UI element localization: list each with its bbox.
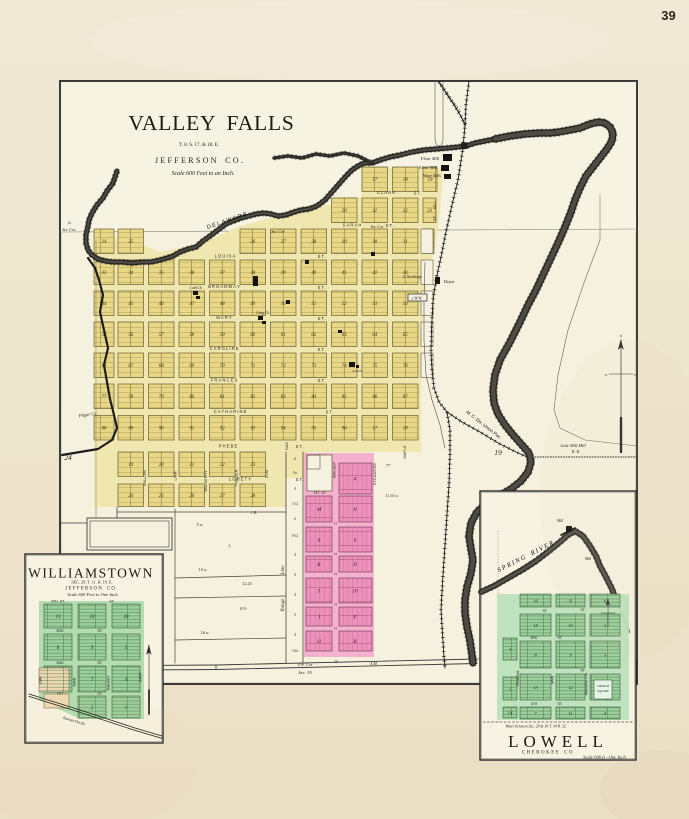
svg-text:C A T H A R I N E: C A T H A R I N E — [214, 409, 247, 414]
svg-text:82: 82 — [250, 395, 255, 400]
svg-text:6: 6 — [294, 457, 296, 461]
svg-text:Depot: Depot — [443, 279, 456, 284]
svg-text:4TH ST.: 4TH ST. — [51, 600, 65, 604]
svg-text:S.W. Cor: S.W. Cor — [298, 662, 313, 667]
svg-text:I: I — [317, 589, 320, 595]
svg-text:69: 69 — [189, 364, 194, 369]
svg-text:ST: ST — [334, 572, 338, 576]
svg-text:61: 61 — [281, 333, 286, 338]
svg-text:1ST ST.: 1ST ST. — [313, 491, 326, 495]
svg-text:ST.: ST. — [109, 600, 114, 604]
svg-text:87: 87 — [403, 395, 408, 400]
svg-text:½2a: ½2a — [292, 649, 298, 653]
svg-text:67: 67 — [128, 364, 133, 369]
svg-text:Scale 600 ft - One Inch.: Scale 600 ft - One Inch. — [583, 755, 627, 760]
svg-text:46: 46 — [159, 302, 164, 307]
svg-text:M A R Y: M A R Y — [216, 315, 232, 320]
svg-text:28: 28 — [250, 494, 255, 499]
svg-text:16 a.: 16 a. — [200, 630, 209, 635]
svg-text:FEDERAL: FEDERAL — [516, 670, 520, 685]
svg-text:5 a.: 5 a. — [197, 522, 204, 527]
svg-text:36: 36 — [189, 271, 194, 276]
svg-text:57: 57 — [159, 333, 164, 338]
svg-text:53: 53 — [372, 302, 377, 307]
svg-text:2ND: 2ND — [56, 661, 64, 665]
svg-text:9½2: 9½2 — [292, 534, 298, 538]
svg-text:21: 21 — [372, 209, 377, 214]
svg-text:95: 95 — [311, 427, 316, 432]
svg-text:WALNUT: WALNUT — [107, 675, 111, 691]
svg-text:10 a.: 10 a. — [198, 567, 207, 572]
svg-text:33: 33 — [102, 271, 107, 276]
svg-text:LOWELL: LOWELL — [508, 732, 608, 751]
svg-text:11: 11 — [568, 711, 572, 716]
svg-text:60: 60 — [250, 333, 255, 338]
svg-text:4: 4 — [294, 487, 296, 491]
svg-text:21: 21 — [189, 463, 194, 468]
svg-text:85: 85 — [342, 395, 347, 400]
svg-text:52: 52 — [342, 302, 347, 307]
svg-text:4: 4 — [294, 593, 296, 597]
svg-text:ST: ST — [334, 627, 338, 631]
svg-text:26: 26 — [250, 240, 255, 245]
svg-text:ELM: ELM — [264, 470, 269, 478]
svg-text:1½2: 1½2 — [292, 502, 298, 506]
svg-text:K: K — [316, 562, 321, 568]
svg-text:76: 76 — [403, 364, 408, 369]
svg-text:MAIN: MAIN — [551, 675, 555, 684]
svg-text:MAPLE: MAPLE — [402, 445, 407, 459]
svg-text:81: 81 — [220, 395, 225, 400]
svg-text:58: 58 — [189, 333, 194, 338]
svg-text:51: 51 — [311, 302, 316, 307]
svg-text:Water Mills: Water Mills — [423, 174, 441, 178]
svg-text:74: 74 — [342, 364, 347, 369]
svg-text:18: 18 — [403, 427, 408, 432]
svg-text:22: 22 — [403, 209, 408, 214]
svg-text:31: 31 — [403, 240, 408, 245]
svg-text:FRASIER: FRASIER — [234, 469, 239, 486]
svg-text:91: 91 — [189, 427, 194, 432]
svg-text:35: 35 — [159, 271, 164, 276]
svg-text:25: 25 — [159, 494, 164, 499]
svg-text:13: 13 — [533, 685, 538, 690]
svg-text:79: 79 — [159, 395, 164, 400]
svg-text:30: 30 — [372, 240, 377, 245]
svg-text:93: 93 — [250, 427, 255, 432]
svg-text:39: 39 — [661, 8, 675, 23]
svg-text:ST: ST — [334, 522, 338, 526]
svg-text:96: 96 — [342, 427, 347, 432]
svg-text:EAST: EAST — [139, 672, 143, 682]
svg-text:20: 20 — [159, 463, 164, 468]
svg-text:ST.: ST. — [97, 629, 102, 633]
svg-text:MAIN: MAIN — [73, 677, 77, 686]
svg-text:Range: Range — [281, 598, 286, 613]
svg-text:MULBERRY: MULBERRY — [203, 470, 208, 492]
svg-text:JEFFERSON CO.: JEFFERSON CO. — [155, 156, 245, 165]
svg-text:Flour Mill: Flour Mill — [420, 156, 440, 161]
svg-text:16: 16 — [533, 598, 538, 603]
svg-text:19: 19 — [128, 463, 133, 468]
svg-text:ST: ST — [334, 603, 338, 607]
svg-text:10: 10 — [568, 623, 573, 628]
svg-text:75: 75 — [372, 364, 377, 369]
svg-text:L O R E T Y: L O R E T Y — [229, 477, 251, 482]
svg-text:P H E B E: P H E B E — [219, 444, 238, 449]
svg-text:23: 23 — [250, 463, 255, 468]
svg-text:ST.: ST. — [542, 609, 547, 613]
svg-text:S A R A H: S A R A H — [343, 223, 362, 228]
svg-text:N: N — [352, 507, 357, 513]
svg-text:24: 24 — [64, 453, 72, 462]
svg-text:54: 54 — [403, 302, 408, 307]
svg-text:39: 39 — [281, 271, 286, 276]
svg-text:8: 8 — [294, 573, 296, 577]
svg-text:S T .: S T . — [318, 378, 327, 383]
svg-text:ST.: ST. — [97, 661, 102, 665]
svg-text:19: 19 — [494, 448, 502, 457]
svg-text:3RD: 3RD — [530, 636, 537, 640]
svg-text:T. 8. S. 17. & 18. E.: T. 8. S. 17. & 18. E. — [179, 143, 219, 148]
svg-text:A. Northrup: A. Northrup — [401, 274, 421, 279]
svg-text:1: 1 — [509, 686, 511, 691]
svg-text:18: 18 — [403, 178, 408, 183]
svg-text:SYCAMORE: SYCAMORE — [372, 462, 377, 485]
svg-text:11.30 a.: 11.30 a. — [385, 493, 398, 498]
svg-text:WASHINGTON: WASHINGTON — [585, 672, 589, 695]
svg-text:Cath Ch.: Cath Ch. — [190, 286, 203, 290]
svg-text:WALNUT: WALNUT — [332, 461, 337, 478]
svg-text:18: 18 — [90, 615, 96, 620]
svg-text:6: 6 — [318, 538, 321, 544]
svg-text:84: 84 — [311, 395, 316, 400]
svg-text:CHURCH: CHURCH — [597, 684, 610, 688]
svg-text:4: 4 — [294, 633, 296, 637]
svg-text:45: 45 — [128, 302, 133, 307]
svg-text:24: 24 — [102, 240, 107, 245]
svg-text:68: 68 — [159, 364, 164, 369]
svg-text:S T .: S T . — [318, 316, 327, 321]
svg-text:12: 12 — [568, 685, 573, 690]
svg-text:42: 42 — [372, 271, 377, 276]
svg-text:S T .: S T . — [318, 285, 327, 290]
svg-text:4 M.: 4 M. — [370, 661, 378, 666]
svg-text:S T .: S T . — [296, 444, 305, 449]
svg-text:S T .: S T . — [386, 223, 395, 228]
svg-text:WILLIAMSTOWN: WILLIAMSTOWN — [28, 566, 154, 581]
svg-text:94: 94 — [281, 427, 286, 432]
svg-text:19: 19 — [428, 178, 433, 183]
svg-text:28: 28 — [311, 240, 316, 245]
svg-text:VALLEY FALLS: VALLEY FALLS — [128, 111, 294, 135]
svg-text:C L A R K: C L A R K — [377, 190, 395, 195]
svg-text:65: 65 — [403, 333, 408, 338]
svg-text:M: M — [316, 507, 322, 513]
svg-text:25: 25 — [128, 240, 133, 245]
svg-text:MILL: MILL — [432, 200, 437, 209]
svg-text:17: 17 — [372, 178, 377, 183]
svg-text:LINN: LINN — [173, 471, 178, 480]
svg-text:47: 47 — [189, 302, 194, 307]
svg-text:Sec Cor: Sec Cor — [271, 229, 285, 234]
svg-text:ST: ST — [334, 552, 338, 556]
svg-text:4TH: 4TH — [531, 702, 538, 706]
svg-text:School: School — [352, 369, 361, 373]
svg-text:Cong Ch.: Cong Ch. — [256, 311, 270, 315]
svg-text:CHEROKEE CO: CHEROKEE CO — [522, 751, 574, 756]
svg-text:OAK: OAK — [284, 441, 289, 450]
svg-text:10: 10 — [334, 659, 338, 664]
svg-text:49: 49 — [250, 302, 255, 307]
svg-text:S T .: S T . — [326, 410, 335, 415]
svg-text:WILLOW: WILLOW — [142, 470, 147, 486]
svg-text:4: 4 — [294, 553, 296, 557]
svg-text:80: 80 — [189, 395, 194, 400]
svg-text:38: 38 — [250, 271, 255, 276]
svg-text:12.20: 12.20 — [242, 581, 252, 586]
svg-text:Line: Line — [281, 565, 286, 576]
svg-text:Scale 600 Feet to an Inch.: Scale 600 Feet to an Inch. — [172, 171, 235, 177]
svg-text:ST.: ST. — [557, 702, 562, 706]
svg-text:29: 29 — [342, 240, 347, 245]
svg-text:41: 41 — [342, 271, 347, 276]
svg-text:ST.: ST. — [432, 215, 437, 221]
svg-text:27: 27 — [220, 494, 225, 499]
svg-text:40: 40 — [311, 271, 316, 276]
svg-text:89: 89 — [128, 427, 133, 432]
svg-text:83: 83 — [281, 395, 286, 400]
svg-text:6: 6 — [354, 538, 357, 544]
svg-text:3RD: 3RD — [56, 629, 64, 633]
svg-text:77: 77 — [102, 395, 107, 400]
svg-text:20: 20 — [342, 209, 347, 214]
svg-text:15: 15 — [533, 623, 538, 628]
svg-text:22: 22 — [220, 463, 225, 468]
svg-text:SQUARE: SQUARE — [597, 689, 609, 693]
svg-text:6: 6 — [294, 517, 296, 521]
svg-text:Sec. 19: Sec. 19 — [298, 670, 312, 675]
svg-text:27: 27 — [281, 240, 286, 245]
svg-text:SEC. 29. T. 11. R. 19. E.: SEC. 29. T. 11. R. 19. E. — [71, 580, 112, 585]
svg-text:62: 62 — [311, 333, 316, 338]
svg-text:S T .: S T . — [414, 191, 423, 196]
svg-text:Flour Mill: Flour Mill — [418, 165, 438, 170]
svg-text:10: 10 — [352, 589, 358, 595]
svg-text:Water between Sec. 29 & 30 T.: Water between Sec. 29 & 30 T. 34 R. 32. — [505, 725, 566, 729]
svg-text:11: 11 — [317, 639, 322, 645]
svg-text:4: 4 — [354, 476, 357, 483]
svg-text:59: 59 — [220, 333, 225, 338]
svg-text:S T .: S T . — [296, 477, 305, 482]
svg-text:Sec Cor: Sec Cor — [371, 224, 384, 229]
svg-text:90: 90 — [159, 427, 164, 432]
svg-text:72: 72 — [281, 364, 286, 369]
svg-text:20: 20 — [124, 615, 130, 620]
svg-text:S T .: S T . — [318, 254, 327, 259]
svg-text:73: 73 — [311, 364, 316, 369]
svg-text:S T .: S T . — [318, 347, 327, 352]
svg-text:F R A N C E S: F R A N C E S — [211, 378, 238, 383]
svg-text:9a: 9a — [293, 471, 297, 475]
svg-text:17: 17 — [372, 427, 377, 432]
svg-text:78: 78 — [128, 395, 133, 400]
svg-text:OAK: OAK — [39, 676, 43, 684]
svg-text:L O U I S A: L O U I S A — [215, 254, 236, 259]
svg-text:24: 24 — [128, 494, 133, 499]
svg-text:( W.W.: ( W.W. — [412, 296, 423, 301]
svg-text:ST.: ST. — [580, 669, 585, 673]
svg-text:88: 88 — [102, 427, 107, 432]
svg-text:26: 26 — [189, 494, 194, 499]
svg-text:64: 64 — [372, 333, 377, 338]
svg-text:Sec Cor: Sec Cor — [62, 227, 76, 232]
svg-text:JEFFERSON CO.: JEFFERSON CO. — [65, 587, 119, 592]
svg-text:34: 34 — [128, 271, 133, 276]
svg-text:56: 56 — [128, 333, 133, 338]
svg-text:Scale 600 Feet to One Inch.: Scale 600 Feet to One Inch. — [67, 592, 118, 597]
svg-text:48: 48 — [220, 302, 225, 307]
svg-text:L.: L. — [227, 543, 231, 548]
svg-text:37: 37 — [220, 271, 225, 276]
svg-text:86: 86 — [372, 395, 377, 400]
svg-text:70: 70 — [220, 364, 225, 369]
svg-text:5: 5 — [294, 613, 296, 617]
svg-text:63: 63 — [342, 333, 347, 338]
svg-text:50: 50 — [281, 302, 286, 307]
svg-text:71: 71 — [250, 364, 255, 369]
svg-text:19: 19 — [56, 615, 62, 620]
svg-text:B R O A D W A Y: B R O A D W A Y — [208, 284, 240, 289]
svg-text:92: 92 — [220, 427, 225, 432]
svg-text:ST.: ST. — [557, 636, 562, 640]
svg-text:D: D — [352, 562, 357, 568]
svg-text:1 R.: 1 R. — [251, 510, 257, 515]
svg-text:10½: 10½ — [239, 606, 247, 611]
svg-text:C A R O L I N E: C A R O L I N E — [210, 346, 239, 351]
